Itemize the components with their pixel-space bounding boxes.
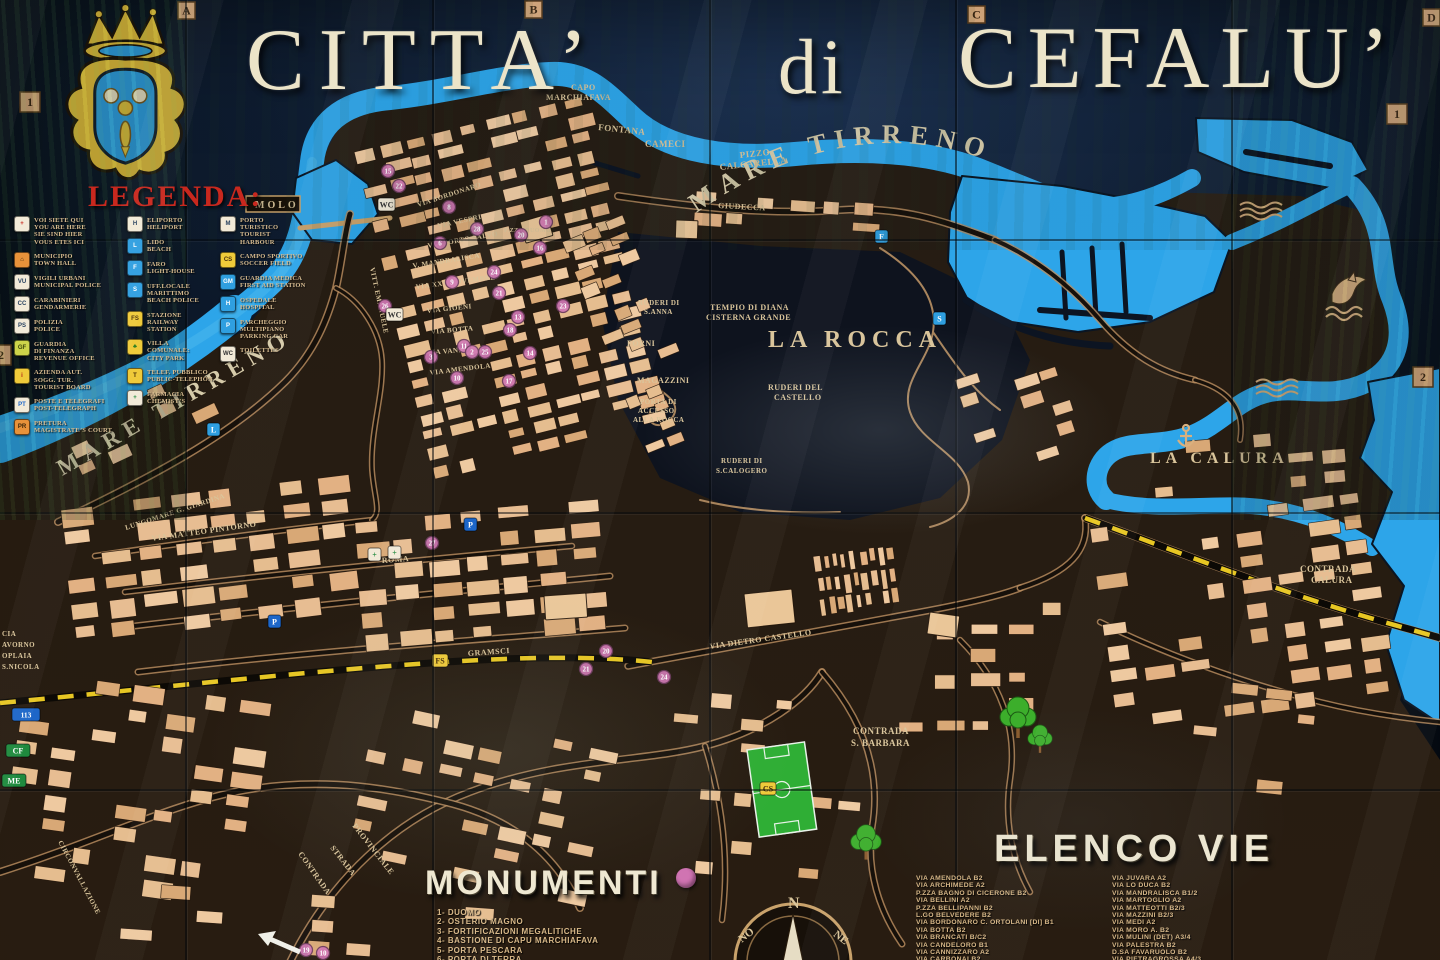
street-index-item: VIA BELLINI A2 [916,897,1112,904]
monuments-list: 1- DUOMO2- OSTERIO MAGNO3- FORTIFICAZION… [425,908,755,960]
monument-number-marker: 16 [534,242,547,255]
monument-number-marker: 19 [300,944,313,957]
svg-text:S: S [937,314,942,323]
legend-icon: P [220,318,236,334]
monument-number-marker: 22 [393,180,406,193]
monument-list-item: 5- PORTA PESCARA [437,946,755,955]
legend-column-1: +VOI SIETE QUIYOU ARE HERESIE SIND HIERV… [14,216,127,441]
svg-text:28: 28 [474,225,482,233]
legend-label-line: YOU ARE HERE [34,224,86,231]
monument-number-marker: 15 [382,165,395,178]
legend-label-line: BEACH [147,246,171,253]
legend-label-line: HELIPORT [147,224,183,231]
map-label: S. BARBARA [851,738,910,748]
legend-item: WCTOILETTES [220,346,330,362]
legend-item: HELIPORTOHELIPORT [127,216,220,232]
svg-text:22: 22 [396,182,404,190]
monument-list-item: 1- DUOMO [437,908,755,917]
legend-label-line: FIRST AID STATION [240,282,306,289]
poi-icon-+: + [368,548,381,561]
street-index-item: VIA MATTEOTTI B2/3 [1112,905,1302,912]
legend-item: ♣VILLACOMUNALE:CITY PARK [127,339,220,362]
legend-label-line: SIE SIND HIER [34,231,86,238]
legend-label-line: ELIPORTO [147,217,183,224]
legend-item: GFGUARDIADI FINANZAREVENUE OFFICE [14,340,127,363]
svg-text:24: 24 [661,673,669,681]
legend-label-line: POLIZIA [34,319,63,326]
svg-text:23: 23 [560,302,568,310]
map-label: CAMECI [645,139,686,149]
svg-text:2: 2 [1420,370,1426,384]
map-label: LA CALURA [1150,450,1289,467]
cefalu-map-sign-photo: MOLO MARE TIRRENO MARE TIRRENO CAPOMARCH… [0,0,1440,960]
sign-title-cefalu: CEFALU’ [958,8,1400,109]
legend-label-line: POLICE [34,326,63,333]
legend-icon: + [127,390,143,406]
legend-label-line: STAZIONE [147,312,182,319]
street-index-item: VIA MARTOGLIO A2 [1112,897,1302,904]
map-label: CASTELLO [774,393,822,402]
city-map-artwork: MOLO MARE TIRRENO MARE TIRRENO CAPOMARCH… [0,0,1440,960]
legend-icon: F [127,260,143,276]
legend-label-line: UFF.LOCALE [147,283,199,290]
monument-list-item: 2- OSTERIO MAGNO [437,917,755,926]
legend-label-line: BEACH POLICE [147,297,199,304]
legend-item: +FARMACIACHEMIST’S [127,390,220,406]
legend-icon: + [14,216,30,232]
legend-label-line: CITY PARK [147,355,190,362]
legend-label-line: VOI SIETE QUI [34,217,86,224]
legend-icon: ⌂ [14,252,30,268]
monument-number-marker: 2 [466,346,479,359]
monument-number-marker: 20 [600,645,613,658]
legend-icon: i [14,368,30,384]
legend-label-line: LIGHT-HOUSE [147,268,195,275]
street-index-column-2: VIA JUVARA A2VIA LO DUCA B2VIA MANDRALIS… [1112,875,1302,960]
monument-number-marker: 8 [443,201,456,214]
legend-item: PSPOLIZIAPOLICE [14,318,127,334]
monument-list-item: 4- BASTIONE DI CAPU MARCHIAFAVA [437,936,755,945]
legend-label-line: LIDO [147,239,171,246]
monument-list-item: 6- PORTA DI TERRA [437,955,755,960]
legend-label-line: PARCHEGGIO [240,319,288,326]
legend-label-line: FARMACIA [147,391,185,398]
legend-icon: GF [14,340,30,356]
monuments-panel: MONUMENTI 1- DUOMO2- OSTERIO MAGNO3- FOR… [425,864,755,960]
legend-label-line: MULTIPIANO [240,326,288,333]
legend-icon: L [127,238,143,254]
legend-item: GMGUARDIA MEDICAFIRST AID STATION [220,274,330,290]
svg-text:20: 20 [603,647,611,655]
svg-text:WC: WC [380,200,394,209]
svg-text:19: 19 [303,946,311,954]
map-label: RUDERI DEL [768,383,823,392]
legend-item: iAZIENDA AUT.SOGG. TUR.TOURIST BOARD [14,368,127,391]
legend-label-line: MUNICIPIO [34,253,76,260]
svg-text:P: P [272,617,277,626]
legend-label-line: CAMPO SPORTIVO [240,253,303,260]
legend-label-line: POSTE E TELEGRAFI [34,398,104,405]
poi-icon-cf: CF [6,744,30,757]
poi-icon-+: + [388,546,401,559]
svg-text:113: 113 [21,710,32,719]
svg-text:1: 1 [1394,107,1400,121]
monument-marker-sample-dot [676,868,696,888]
monument-number-marker: 17 [503,375,516,388]
svg-text:D: D [1427,11,1436,25]
legend-icon: ♣ [127,339,143,355]
monument-list-item: 3- FORTIFICAZIONI MEGALITICHE [437,927,755,936]
legend-label-line: GUARDIA MEDICA [240,275,306,282]
monument-number-marker: 24 [658,671,671,684]
svg-text:21: 21 [583,665,591,673]
legend-label-line: VIGILI URBANI [34,275,101,282]
svg-text:21: 21 [496,289,504,297]
legend-icon: T [127,368,143,384]
monument-number-marker: 3 [425,351,438,364]
grid-marker: 1 [20,92,40,112]
street-index-column-1: VIA AMENDOLA B2VIA ARCHIMEDE A2P.ZZA BAG… [916,875,1112,960]
street-index-item: VIA LO DUCA B2 [1112,882,1302,889]
svg-text:8: 8 [447,203,451,211]
legend-icon: CC [14,296,30,312]
legend-item: PTPOSTE E TELEGRAFIPOST-TELEGRAPH [14,397,127,413]
legend-item: HOSPEDALEHOSPITAL [220,296,330,312]
grid-marker: 2 [0,345,11,365]
svg-text:2: 2 [0,348,4,362]
street-index-item: VIA BRANCATI B/C2 [916,934,1112,941]
svg-text:10: 10 [320,949,328,957]
svg-text:WC: WC [388,310,402,319]
poi-icon-wc: WC [378,198,395,211]
legend-label-line: COMUNALE: [147,347,190,354]
monument-number-marker: 28 [471,223,484,236]
legend-icon: PS [14,318,30,334]
legend-label-line: OSPEDALE [240,297,277,304]
svg-text:18: 18 [507,326,515,334]
legend-label-line: TOURIST [240,231,278,238]
monuments-title: MONUMENTI [425,864,662,902]
map-label: ACCESSO [638,407,675,415]
monument-number-marker: 25 [479,346,492,359]
map-label: OPLAIA [2,652,32,660]
monument-number-marker: 23 [557,300,570,313]
svg-text:17: 17 [506,377,514,385]
legend-item: TTELEF. PUBBLICOPUBLIC-TELEPHON [127,368,220,384]
legend-label-line: CHEMIST’S [147,398,185,405]
map-label: CALURA [1311,575,1353,585]
street-index-item: VIA PALESTRA B2 [1112,942,1302,949]
legend-label-line: VILLA [147,340,190,347]
street-index-item: VIA PIETRAGROSSA A4/3 [1112,956,1302,960]
legend-label-line: AZIENDA AUT. [34,369,91,376]
map-label: RUDERI DI [638,299,680,307]
map-label: PORTA DI [640,398,677,406]
svg-text:24: 24 [491,268,499,276]
poi-icon-s: S [933,312,946,325]
monument-number-marker: 13 [512,311,525,324]
svg-text:16: 16 [537,244,545,252]
monument-number-marker: 14 [524,347,537,360]
legend-column-2: HELIPORTOHELIPORTLLIDOBEACHFFAROLIGHT-HO… [127,216,220,441]
coat-of-arms [67,5,185,179]
poi-icon-p: P [268,615,281,628]
legend-item: CCCARABINIERIGENDARMERIE [14,296,127,312]
svg-text:14: 14 [527,349,535,357]
street-index-item: P.ZZA BELLIPANNI B2 [916,905,1112,912]
legend-item: +VOI SIETE QUIYOU ARE HERESIE SIND HIERV… [14,216,127,246]
legend-icon: CS [220,252,236,268]
legend-label-line: GUARDIA [34,341,95,348]
svg-text:ME: ME [8,776,21,785]
svg-text:15: 15 [385,167,393,175]
map-label: S.NICOLA [2,663,40,671]
legend-item: MPORTOTURISTICOTOURISTHARBOUR [220,216,330,246]
map-label: CONTRADA [1300,564,1356,574]
legend-panel: +VOI SIETE QUIYOU ARE HERESIE SIND HIERV… [14,216,330,441]
legend-label-line: MARITTIMO [147,290,199,297]
monument-number-marker: 6 [434,237,447,250]
legend-icon: WC [220,346,236,362]
street-index-item: VIA BORDONARO C. ORTOLANI [DI] B1 [916,919,1112,926]
legend-label-line: SOCCER FIELD [240,260,303,267]
map-label: ALLA ROCCA [633,416,684,424]
legend-item: PPARCHEGGIOMULTIPIANOPARKING CAR [220,318,330,341]
legend-label-line: PARKING CAR [240,333,288,340]
legend-icon: GM [220,274,236,290]
legend-heading: LEGENDA: [88,180,262,214]
svg-text:25: 25 [482,348,490,356]
map-label: RUDERI DI [721,457,763,465]
legend-label-line: MAGISTRATE’S COURT [34,427,112,434]
legend-label-line: TOWN HALL [34,260,76,267]
legend-icon: S [127,282,143,298]
legend-item: FSSTAZIONERAILWAYSTATION [127,311,220,334]
legend-icon: FS [127,311,143,327]
street-index-item: VIA MEDI A2 [1112,919,1302,926]
legend-label-line: RAILWAY [147,319,182,326]
legend-item: SUFF.LOCALEMARITTIMOBEACH POLICE [127,282,220,305]
map-label: MAGAZZINI [637,376,690,385]
svg-text:P: P [468,520,473,529]
monument-number-marker: 21 [580,663,593,676]
svg-text:+: + [372,550,377,559]
monument-number-marker: 10 [451,372,464,385]
legend-label-line: PORTO [240,217,278,224]
svg-text:+: + [392,548,397,557]
map-label: AVORNO [2,641,35,649]
legend-icon: H [220,296,236,312]
svg-text:FS: FS [435,656,445,665]
legend-label-line: SOGG. TUR. [34,377,91,384]
legend-item: LLIDOBEACH [127,238,220,254]
svg-text:1: 1 [27,95,33,109]
street-index-item: VIA CANDELORO B1 [916,942,1112,949]
monument-number-marker: 24 [488,266,501,279]
street-index-item: VIA ARCHIMEDE A2 [916,882,1112,889]
legend-item: ⌂MUNICIPIOTOWN HALL [14,252,127,268]
street-index-item: VIA MULINI (DET) A3/4 [1112,934,1302,941]
street-index-item: VIA CARBONAI B2 [916,956,1112,960]
map-label: CISTERNA GRANDE [706,313,791,322]
svg-text:N: N [788,895,800,912]
legend-label-line: GENDARMERIE [34,304,86,311]
poi-icon-p: P [464,518,477,531]
monument-number-marker: 18 [504,324,517,337]
legend-icon: PT [14,397,30,413]
sign-title-di: di [778,22,847,112]
legend-label-line: HARBOUR [240,239,278,246]
poi-icon-113: 113 [12,708,40,721]
map-label: LA ROCCA [768,327,942,353]
legend-label-line: TURISTICO [240,224,278,231]
street-index-title: ELENCO VIE [994,828,1338,871]
sign-title-citta: CITTA’ [246,10,602,111]
legend-label-line: FARO [147,261,195,268]
svg-text:20: 20 [518,231,526,239]
map-label: TEMPIO DI DIANA [710,303,789,312]
legend-label-line: CARABINIERI [34,297,86,304]
svg-text:CF: CF [13,746,24,755]
legend-label-line: REVENUE OFFICE [34,355,95,362]
legend-column-3: MPORTOTURISTICOTOURISTHARBOURCSCAMPO SPO… [220,216,330,441]
legend-icon: M [220,216,236,232]
svg-text:9: 9 [450,278,454,286]
poi-icon-wc: WC [386,308,403,321]
legend-label-line: PRETURA [34,420,112,427]
svg-text:1: 1 [544,218,548,226]
legend-label-line: HOSPITAL [240,304,277,311]
legend-label-line: PUBLIC-TELEPHON [147,376,213,383]
legend-label-line: POST-TELEGRAPH [34,405,104,412]
map-label: S.ANNA [644,308,673,316]
legend-label-line: DI FINANZA [34,348,95,355]
map-label: CONTRADA [853,726,909,736]
legend-item: FFAROLIGHT-HOUSE [127,260,220,276]
grid-marker: D [1423,9,1440,26]
legend-icon: VU [14,274,30,290]
poi-icon-me: ME [2,774,26,787]
monument-number-marker: 10 [317,947,330,960]
legend-label-line: TOILETTES [240,347,279,354]
map-label: S.CALOGERO [716,467,768,475]
svg-text:2: 2 [470,348,474,356]
street-index-panel: ELENCO VIE VIA AMENDOLA B2VIA ARCHIMEDE … [898,828,1338,960]
svg-text:10: 10 [454,374,462,382]
monument-number-marker: 1 [540,216,553,229]
legend-item: PRPRETURAMAGISTRATE’S COURT [14,419,127,435]
svg-text:13: 13 [515,313,523,321]
legend-label-line: MUNICIPAL POLICE [34,282,101,289]
monument-number-marker: 21 [493,287,506,300]
legend-icon: PR [14,419,30,435]
grid-marker: 2 [1413,367,1433,387]
legend-label-line: TOURIST BOARD [34,384,91,391]
legend-item: VUVIGILI URBANIMUNICIPAL POLICE [14,274,127,290]
map-label: FORNI [627,339,655,348]
map-label: CIA [2,630,16,638]
legend-item: CSCAMPO SPORTIVOSOCCER FIELD [220,252,330,268]
monument-number-marker: 9 [446,276,459,289]
legend-icon: H [127,216,143,232]
poi-icon-cs: CS [760,782,776,795]
legend-label-line: STATION [147,326,182,333]
legend-label-line: VOUS ETES ICI [34,239,86,246]
legend-label-line: TELEF. PUBBLICO [147,369,213,376]
